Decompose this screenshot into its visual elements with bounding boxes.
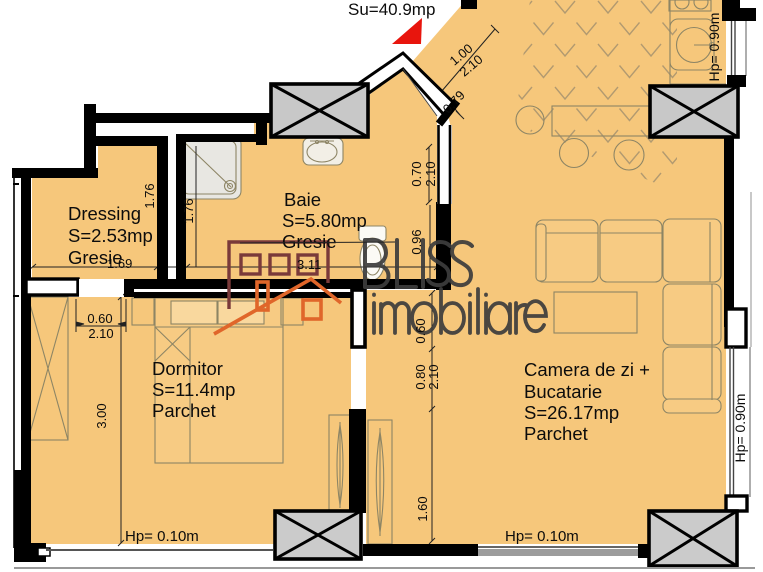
svg-text:2.10: 2.10 — [88, 326, 113, 341]
svg-text:Parchet: Parchet — [524, 423, 588, 444]
svg-text:Camera de zi +: Camera de zi + — [524, 359, 650, 380]
svg-text:Hp= 0.10m: Hp= 0.10m — [505, 528, 579, 545]
svg-text:0.70: 0.70 — [409, 161, 424, 186]
svg-text:1.76: 1.76 — [181, 198, 196, 223]
svg-text:Bucatarie: Bucatarie — [524, 381, 602, 402]
svg-text:0.60: 0.60 — [413, 318, 428, 343]
svg-text:Su=40.9mp: Su=40.9mp — [348, 0, 435, 19]
svg-text:Hp= 0.90m: Hp= 0.90m — [706, 13, 722, 82]
svg-text:1.76: 1.76 — [142, 183, 157, 208]
svg-text:S=11.4mp: S=11.4mp — [152, 379, 235, 400]
svg-text:Dormitor: Dormitor — [152, 358, 223, 379]
svg-text:0.96: 0.96 — [409, 229, 424, 254]
svg-text:S=5.80mp: S=5.80mp — [282, 210, 367, 231]
svg-text:Gresie: Gresie — [282, 231, 337, 252]
svg-text:S=26.17mp: S=26.17mp — [524, 402, 619, 423]
svg-text:1.60: 1.60 — [415, 496, 430, 521]
svg-text:Hp= 0.90m: Hp= 0.90m — [732, 394, 748, 463]
svg-text:Baie: Baie — [284, 189, 321, 210]
svg-text:S=2.53mp: S=2.53mp — [68, 225, 153, 246]
svg-text:2.10: 2.10 — [426, 364, 441, 389]
svg-text:3.00: 3.00 — [94, 403, 109, 428]
svg-text:0.60: 0.60 — [87, 311, 112, 326]
svg-text:Parchet: Parchet — [152, 400, 216, 421]
svg-text:2.10: 2.10 — [423, 161, 438, 186]
svg-text:Hp= 0.10m: Hp= 0.10m — [125, 528, 199, 545]
svg-text:1.69: 1.69 — [107, 256, 132, 271]
svg-text:3.11: 3.11 — [297, 257, 321, 272]
svg-text:Dressing: Dressing — [68, 203, 141, 224]
